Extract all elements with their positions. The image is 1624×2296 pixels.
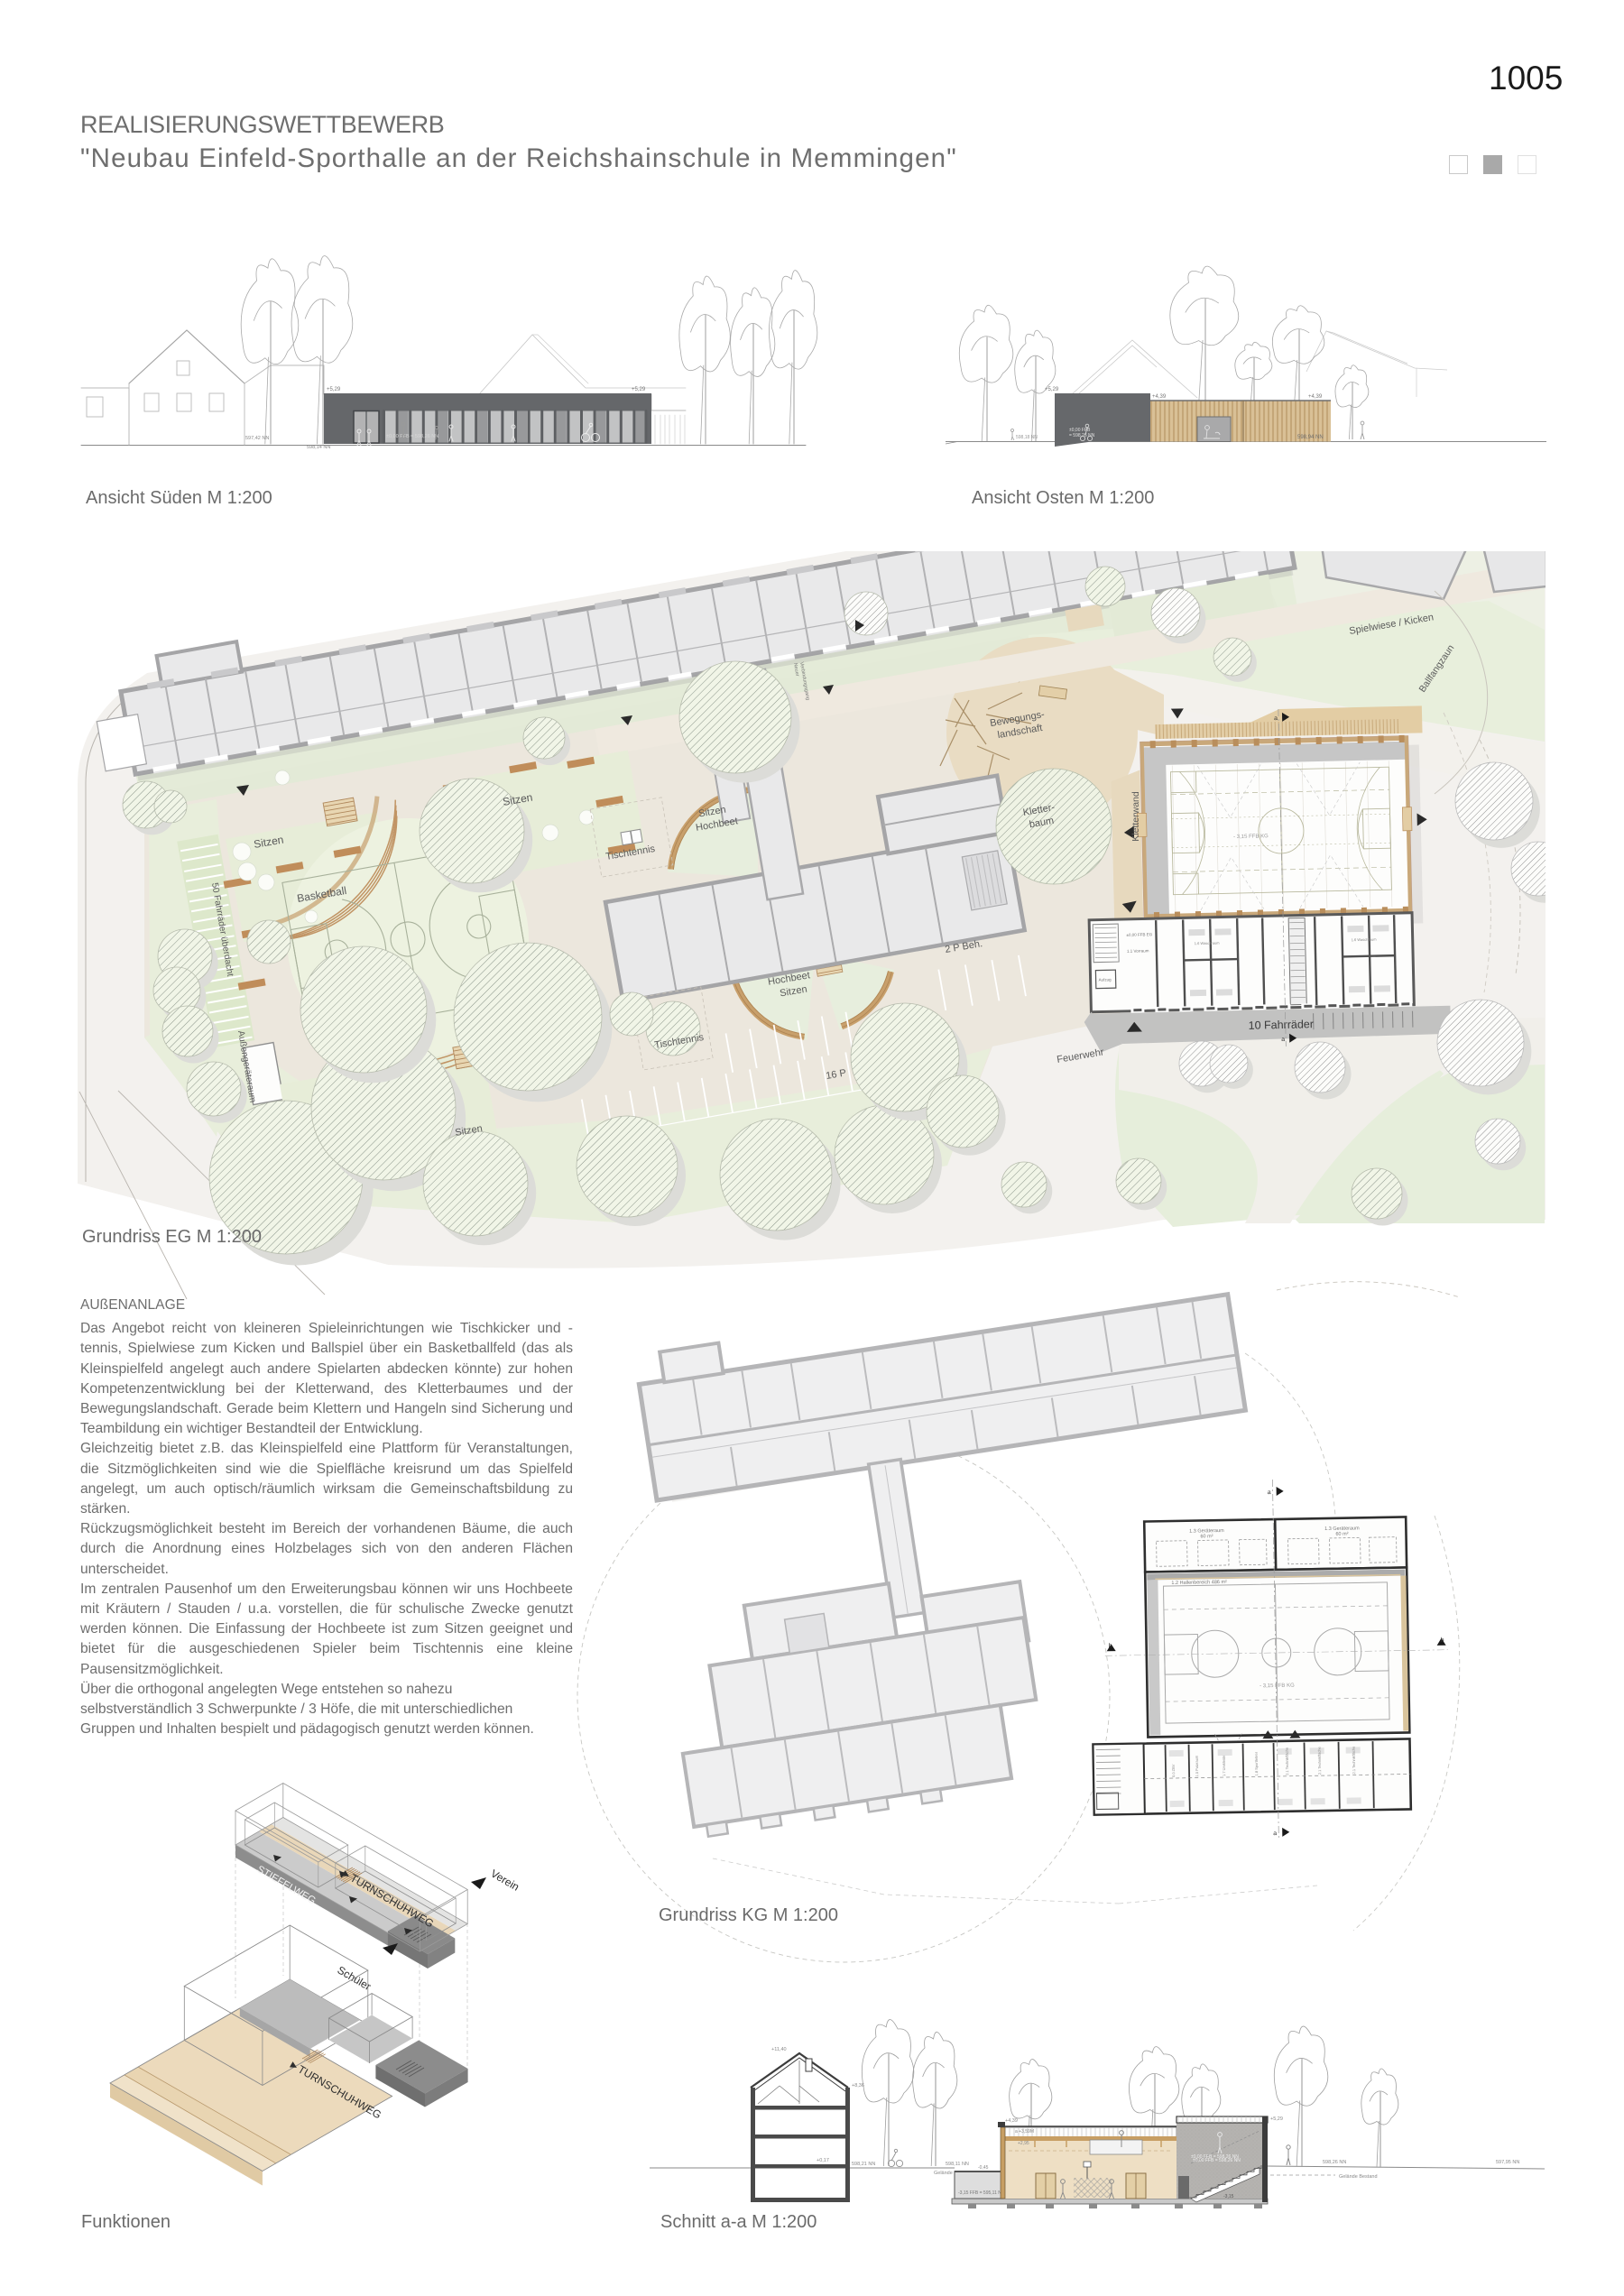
svg-text:-0,45: -0,45 (978, 2165, 989, 2171)
svg-text:-3,15 FFB = 595,11 NN: -3,15 FFB = 595,11 NN (958, 2190, 1005, 2196)
svg-text:598,11 NN: 598,11 NN (946, 2162, 969, 2167)
svg-text:+4,39: +4,39 (1308, 394, 1323, 400)
svg-text:598,94 NN: 598,94 NN (1297, 435, 1324, 440)
svg-text:±0,00 FFB EG: ±0,00 FFB EG (1126, 932, 1152, 937)
svg-text:598,26 NN: 598,26 NN (1323, 2160, 1346, 2165)
svg-text:-3,15: -3,15 (1223, 2194, 1234, 2199)
svg-text:0.0 ZBV: 0.0 ZBV (1171, 1764, 1176, 1777)
svg-text:±0,00 FFB = 598,26 NN: ±0,00 FFB = 598,26 NN (386, 434, 438, 439)
svg-text:598,21 NN: 598,21 NN (852, 2162, 875, 2167)
svg-text:1.6 Waschraum: 1.6 Waschraum (1195, 941, 1221, 946)
svg-text:+4,39: +4,39 (1005, 2118, 1018, 2124)
svg-text:+2,95: +2,95 (1018, 2141, 1029, 2146)
svg-text:+5,29: +5,29 (327, 387, 341, 392)
svg-text:Verein: Verein (488, 1867, 521, 1894)
svg-text:598,18 NN: 598,18 NN (1016, 435, 1038, 440)
svg-text:+0,17: +0,17 (817, 2158, 829, 2163)
svg-text:1.0 Putzraum: 1.0 Putzraum (1195, 1755, 1199, 1777)
svg-text:- 3,15 FFB KG: - 3,15 FFB KG (1233, 834, 1269, 840)
svg-text:60 m²: 60 m² (1335, 1532, 1348, 1537)
svg-text:1.1 Vorraum: 1.1 Vorraum (1127, 948, 1149, 954)
svg-text:2.1 Technikfläche: 2.1 Technikfläche (1352, 1746, 1357, 1775)
svg-text:a +3,59M: a +3,59M (1015, 2129, 1034, 2135)
svg-text:598,14 NN: 598,14 NN (307, 445, 330, 450)
svg-text:597,42 NN: 597,42 NN (245, 436, 269, 441)
svg-text:+11,40: +11,40 (771, 2047, 787, 2052)
svg-text:a: a (1268, 1489, 1271, 1496)
svg-text:+8,36: +8,36 (852, 2083, 864, 2089)
svg-text:b: b (1441, 1637, 1444, 1644)
svg-text:+5,29: +5,29 (632, 387, 646, 392)
svg-text:+5,29: +5,29 (1270, 2116, 1283, 2122)
svg-text:597,95 NN: 597,95 NN (1496, 2160, 1519, 2165)
svg-text:2.1 Technikfläche: 2.1 Technikfläche (1317, 1747, 1323, 1775)
svg-text:1.7 Umkleide: 1.7 Umkleide (1222, 1755, 1226, 1776)
svg-text:1.8 Sportlehrer: 1.8 Sportlehrer (1254, 1751, 1259, 1775)
svg-text:1.2 Hallenbereich 486 m²: 1.2 Hallenbereich 486 m² (1171, 1580, 1227, 1586)
svg-text:b: b (1109, 1643, 1112, 1649)
svg-text:+4,39: +4,39 (1152, 394, 1167, 400)
svg-text:= 598,26 NN: = 598,26 NN (1069, 433, 1095, 438)
svg-text:2.1 Technikfläche: 2.1 Technikfläche (1285, 1747, 1290, 1775)
svg-text:a: a (1274, 715, 1278, 722)
svg-text:1.6 Waschraum: 1.6 Waschraum (1352, 937, 1378, 943)
svg-text:10 Fahrräder: 10 Fahrräder (1249, 1018, 1315, 1032)
svg-text:a: a (1273, 1830, 1277, 1837)
svg-text:Aufzug: Aufzug (1099, 977, 1112, 982)
svg-text:Kletterwand: Kletterwand (1130, 791, 1141, 842)
svg-text:- 3,15 FFB KG: - 3,15 FFB KG (1260, 1683, 1295, 1690)
svg-text:+5,29: +5,29 (1045, 387, 1059, 392)
svg-text:±0,00 FFB = 598,26 NN: ±0,00 FFB = 598,26 NN (1191, 2154, 1239, 2160)
svg-text:60 m²: 60 m² (1200, 1534, 1213, 1539)
svg-text:Gelände Bestand: Gelände Bestand (1339, 2174, 1378, 2180)
svg-text:a: a (1281, 1037, 1285, 1043)
